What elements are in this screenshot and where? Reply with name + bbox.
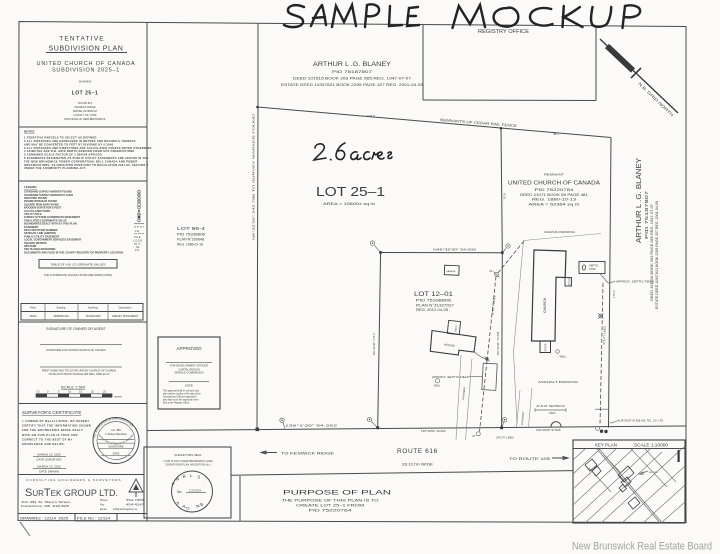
svg-text:SIGNATURE OF OWNER OR AGENT: SIGNATURE OF OWNER OR AGENT [46, 327, 106, 331]
svg-text:TO KESWICK RIDGE: TO KESWICK RIDGE [281, 452, 335, 456]
svg-text:N46°35'30" 54.000: N46°35'30" 54.000 [433, 248, 477, 252]
svg-text:SIGNATURE: SIGNATURE [109, 444, 124, 448]
svg-text:(THIS IS NOT A NEW BRUNSWICK L: (THIS IS NOT A NEW BRUNSWICK LAND [163, 459, 212, 463]
svg-text:KEY PID: KEY PID [649, 472, 658, 474]
svg-text:CERTIFY THAT THE INFORMATION S: CERTIFY THAT THE INFORMATION SHOWN [22, 424, 91, 428]
svg-text:FOR DEVELOPMENT OFFICER: FOR DEVELOPMENT OFFICER [170, 364, 208, 368]
svg-text:SCALE 1:10000: SCALE 1:10000 [634, 443, 669, 448]
svg-text:SERVICE COMMISSION: SERVICE COMMISSION [174, 371, 203, 375]
svg-text:KESWICK RIDGE: KESWICK RIDGE [75, 105, 96, 109]
svg-text:UNITED CHURCH OF CANADA: UNITED CHURCH OF CANADA [508, 181, 600, 187]
svg-text:LOT 12–01: LOT 12–01 [414, 292, 454, 298]
svg-text:info@surtekgroup.ca: info@surtekgroup.ca [113, 507, 138, 511]
svg-text:DATE DRAWN: DATE DRAWN [39, 470, 59, 474]
svg-text:ESTATE DEED 11937621 BOOK 2295: ESTATE DEED 11937621 BOOK 2295 PAGE 327 … [281, 83, 423, 87]
svg-text:7.5: 7.5 [36, 390, 40, 394]
svg-text:AND MAY BE CONVERTED TO FEET B: AND MAY BE CONVERTED TO FEET BY DIVIDING… [24, 142, 113, 146]
svg-text:after twelve months of the dat: after twelve months of the date of the [163, 393, 202, 396]
svg-text:454-4147: 454-4147 [126, 503, 145, 507]
svg-text:MARCH 13, 2025: MARCH 13, 2025 [37, 465, 61, 469]
svg-text:Description: Description [119, 306, 133, 310]
svg-text:PID 75187807: PID 75187807 [332, 70, 372, 74]
svg-text:PID 75338806: PID 75338806 [416, 299, 451, 303]
svg-text:Fax: Fax [100, 503, 105, 507]
svg-text:1 TENTATIVE PARCELS TO SELECT: 1 TENTATIVE PARCELS TO SELECT AS DEFINED [24, 136, 97, 140]
svg-text:SURVEYORS SEAL: SURVEYORS SEAL [174, 453, 202, 457]
svg-text:metres: metres [114, 395, 123, 399]
svg-text:ORGANIZATIONS, AS INDICATED PU: ORGANIZATIONS, AS INDICATED PURSUANT TO … [24, 163, 149, 167]
svg-text:UTILITY LINES: UTILITY LINES [602, 326, 607, 345]
svg-text:DOCUMENTS ARE FILED IN THE COU: DOCUMENTS ARE FILED IN THE COUNTY REGIST… [24, 250, 123, 254]
svg-text:SIGN: SIGN [549, 411, 555, 415]
svg-text:57.6: 57.6 [503, 193, 507, 199]
svg-text:MARCH 13, 2025: MARCH 13, 2025 [37, 453, 61, 457]
svg-text:SHOWING: SHOWING [79, 80, 92, 84]
svg-text:136°1'20" 94.262: 136°1'20" 94.262 [285, 424, 338, 428]
svg-text:PID 75220764: PID 75220764 [309, 508, 353, 513]
svg-text:SIGNATURE FOR UNITED CHURCH OF: SIGNATURE FOR UNITED CHURCH OF CANADA [46, 348, 106, 352]
svg-text:6 EASEMENTS DESIGNATED AS PUB: 6 EASEMENTS DESIGNATED AS PUBLIC UTILITY… [24, 156, 149, 160]
svg-text:136°30'00" 97.926: 136°30'00" 97.926 [536, 428, 561, 432]
svg-text:KEY PLAN: KEY PLAN [595, 443, 617, 448]
svg-text:Email: Email [100, 507, 107, 511]
svg-text:PLAN N°200648: PLAN N°200648 [177, 238, 204, 242]
svg-text:WELL: WELL [560, 355, 568, 359]
svg-text:2 ALL DISTANCES ARE EXPRESSED: 2 ALL DISTANCES ARE EXPRESSED IN METRES … [24, 139, 136, 143]
svg-text:TABLE OF N.B. CO-ORDINATE VALU: TABLE OF N.B. CO-ORDINATE VALUES [50, 263, 105, 267]
svg-text:APPROX. SEPTIC FIELD: APPROX. SEPTIC FIELD [616, 280, 655, 284]
svg-text:NOTE 21071 BOOK 69 PAGE 481 RE: NOTE 21071 BOOK 69 PAGE 481 REG. 1880-10… [49, 372, 110, 376]
svg-text:APPROVED: APPROVED [176, 346, 202, 351]
svg-text:plan has not to the inspection: plan has not to the inspection been [163, 399, 199, 402]
svg-text:2486965.193: 2486965.193 [53, 314, 69, 318]
svg-text:101-451 St. Mary's Street,: 101-451 St. Mary's Street, [21, 500, 71, 504]
svg-text:176.3: 176.3 [612, 290, 616, 298]
svg-text:Point: Point [30, 306, 36, 310]
svg-text:Phone: Phone [100, 498, 108, 502]
svg-text:UNDER THE COMMUNITY PLANNING A: UNDER THE COMMUNITY PLANNING ACT. [24, 166, 86, 170]
svg-text:This approval shall be null an: This approval shall be null and void [163, 390, 200, 393]
svg-text:PID 75338806: PID 75338806 [177, 233, 205, 237]
svg-text:Northing: Northing [88, 306, 98, 310]
svg-text:F.N.: F.N. [135, 229, 140, 233]
svg-text:CORRECT TO THE BEST OF MY: CORRECT TO THE BEST OF MY [22, 437, 73, 441]
svg-text:SUBDIVISION PLAN: SUBDIVISION PLAN [49, 46, 124, 53]
svg-text:PROVINCE OF NEW BRUNSWICK: PROVINCE OF NEW BRUNSWICK [64, 117, 105, 121]
svg-text:47.8 AT SETBACK: 47.8 AT SETBACK [536, 404, 565, 408]
svg-text:F.N.: F.N. [135, 248, 140, 252]
svg-text:STEPS: STEPS [545, 343, 548, 351]
svg-text:UP: UP [489, 270, 493, 273]
svg-text:ROUTE 616: ROUTE 616 [78, 101, 93, 105]
svg-text:25010: 25010 [29, 314, 37, 318]
svg-text:UTILITY LINES: UTILITY LINES [496, 436, 514, 440]
svg-text:48.1: 48.1 [553, 132, 559, 136]
svg-text:454-7066: 454-7066 [126, 498, 145, 502]
svg-text:136°30'00" 34.000: 136°30'00" 34.000 [421, 429, 446, 433]
svg-text:CONSULTING ENGINEERS & SURVEYO: CONSULTING ENGINEERS & SURVEYORS [26, 478, 122, 482]
svg-text:THE NEW BRUNSWICK POWER CORPOR: THE NEW BRUNSWICK POWER CORPORATION, BEL… [24, 159, 138, 163]
svg-text:ESTATE DEED 11937621 BOOK 2295: ESTATE DEED 11937621 BOOK 2295 PAGE 327 … [654, 200, 659, 309]
svg-text:LOT 95-4: LOT 95-4 [177, 226, 206, 231]
svg-text:ARTHUR L .G. BLANEY: ARTHUR L .G. BLANEY [636, 158, 643, 243]
svg-text:3 ALL DISTANCES AND DIRECTION: 3 ALL DISTANCES AND DIRECTIONS ARE CALCU… [24, 146, 152, 150]
svg-text:Fredericton, NB E3A 8H5: Fredericton, NB E3A 8H5 [21, 504, 70, 508]
svg-text:LOT 25–1: LOT 25–1 [72, 91, 99, 97]
svg-text:108.3: 108.3 [367, 114, 375, 118]
svg-text:ASPHALT PARKING: ASPHALT PARKING [538, 380, 579, 384]
svg-text:REG. 2012-04-05: REG. 2012-04-05 [416, 308, 448, 312]
svg-text:AREA = 62364 sq m: AREA = 62364 sq m [529, 203, 580, 207]
svg-text:STEPS: STEPS [569, 277, 572, 285]
svg-text:TANK: TANK [589, 267, 596, 271]
svg-text:THE COORDINATE VALUES LISTED A: THE COORDINATE VALUES LISTED ARE NAD83 (… [44, 273, 112, 277]
svg-text:TENTATIVE: TENTATIVE [59, 36, 105, 43]
svg-text:PARISH OF BRIGHT: PARISH OF BRIGHT [73, 109, 98, 113]
svg-text:REG. 1986-01-16: REG. 1986-01-16 [177, 243, 203, 247]
svg-text:Easting: Easting [57, 306, 66, 310]
svg-text:filed in the Registry Office.: filed in the Registry Office. [163, 402, 190, 405]
svg-text:ARTHUR L .G. BLANEY: ARTHUR L .G. BLANEY [313, 62, 391, 68]
svg-text:SURTEK GROUP LTD.: SURTEK GROUP LTD. [25, 487, 118, 499]
svg-text:AREA = 10600± sq m: AREA = 10600± sq m [323, 201, 376, 206]
svg-text:SUBDIVISION 2025–1: SUBDIVISION 2025–1 [52, 68, 120, 74]
svg-text:SURVEYOR'S CERTIFICATE: SURVEYOR'S CERTIFICATE [22, 410, 81, 415]
svg-text:DEED 101516 BOOK 263 PAGE 565: DEED 101516 BOOK 263 PAGE 565 REG. 1947-… [293, 77, 411, 81]
svg-text:N6°32'30" 174.6: N6°32'30" 174.6 [372, 333, 376, 355]
svg-text:GARAGE: GARAGE [446, 270, 456, 273]
svg-text:REMNANT: REMNANT [544, 173, 564, 177]
svg-text:REGISTRY OFFICE: REGISTRY OFFICE [478, 29, 530, 35]
svg-text:WITH ON THIS PLAN IS TRUE AND: WITH ON THIS PLAN IS TRUE AND [22, 433, 78, 437]
svg-text:7431064.849: 7431064.849 [85, 314, 101, 318]
svg-text:PID 75220764: PID 75220764 [535, 188, 574, 192]
svg-text:DEED 21071 BOOK 69 PAGE 481: DEED 21071 BOOK 69 PAGE 481 [520, 193, 588, 197]
svg-text:PRINT NAME AND TITLE FOR UNITE: PRINT NAME AND TITLE FOR UNITED CHURCH O… [42, 369, 116, 373]
svg-text:5 COMBINED SCALE FACTOR OF 1.: 5 COMBINED SCALE FACTOR OF 1.000046 APPL… [24, 153, 102, 157]
svg-text:GRASS PARKING: GRASS PARKING [544, 230, 576, 234]
svg-text:PURPOSE OF PLAN: PURPOSE OF PLAN [283, 490, 392, 497]
svg-text:CHURCH: CHURCH [543, 297, 547, 313]
svg-text:UNITED CHURCH OF CANADA: UNITED CHURCH OF CANADA [37, 61, 136, 67]
svg-text:NOTES: NOTES [24, 130, 34, 134]
svg-text:ROUTE 616: ROUTE 616 [397, 448, 438, 455]
svg-text:DATE: DATE [113, 452, 120, 456]
svg-text:HARVEY MONUMENT: HARVEY MONUMENT [112, 314, 139, 318]
svg-text:N6°32'30" 74.638: N6°32'30" 74.638 [496, 331, 500, 355]
svg-text:N6°32'30" 242.786 TO SURVEY: N6°32'30" 242.786 TO SURVEY MARKER FOUND [252, 112, 256, 240]
svg-text:WELL: WELL [434, 385, 441, 388]
svg-text:KNOWLEDGE AND BELIEF.: KNOWLEDGE AND BELIEF. [22, 442, 65, 446]
svg-text:LEGEND: LEGEND [24, 185, 37, 189]
svg-text:SCALE 1:500: SCALE 1:500 [61, 385, 86, 390]
svg-text:FOR THE BOUNDARIES BEING DEALT: FOR THE BOUNDARIES BEING DEALT [22, 428, 83, 432]
svg-text:FILE No : 12114: FILE No : 12114 [77, 517, 110, 521]
svg-text:New Brunswick Real Estate Boar: New Brunswick Real Estate Board [572, 541, 712, 553]
svg-text:UP: UP [472, 435, 476, 438]
svg-text:REG. 1880-10-13: REG. 1880-10-13 [532, 198, 576, 202]
svg-text:Development Officer's approval: Development Officer's approval if [163, 396, 197, 399]
svg-text:DATE SURVEYED: DATE SURVEYED [36, 458, 62, 462]
svg-text:20.117m WIDE: 20.117m WIDE [402, 463, 434, 467]
svg-text:233355: 233355 [189, 489, 201, 493]
svg-text:No.: No. [177, 490, 182, 494]
svg-text:DRAWING : 12114_2025: DRAWING : 12114_2025 [20, 517, 68, 521]
svg-text:J. Michael MacAllister: J. Michael MacAllister [105, 433, 127, 436]
svg-text:4 AZIMUTHS ARE N.B. GRID NORT: 4 AZIMUTHS ARE N.B. GRID NORTH DERIVED F… [24, 149, 134, 153]
svg-text:I, HUMBOLDT MacALLISTER, DO HE: I, HUMBOLDT MacALLISTER, DO HEREBY [22, 419, 90, 423]
svg-text:SURVEYORS PLAN VALIDATION No.): SURVEYORS PLAN VALIDATION No.) [165, 463, 210, 467]
svg-text:136°30'00" 97.926 N.B. TEL.: 136°30'00" 97.926 N.B. TEL. CO. LTD. [619, 419, 664, 423]
svg-text:PLAN N°31327027: PLAN N°31327027 [416, 303, 454, 307]
svg-text:COUNTY OF YORK: COUNTY OF YORK [73, 113, 97, 117]
svg-text:DATE: DATE [185, 384, 193, 388]
svg-text:No. 389: No. 389 [111, 428, 121, 432]
svg-text:LOT 25–1: LOT 25–1 [316, 184, 385, 199]
svg-text:TO ROUTE 105: TO ROUTE 105 [509, 457, 550, 461]
svg-text:SEPTIC: SEPTIC [589, 264, 598, 268]
